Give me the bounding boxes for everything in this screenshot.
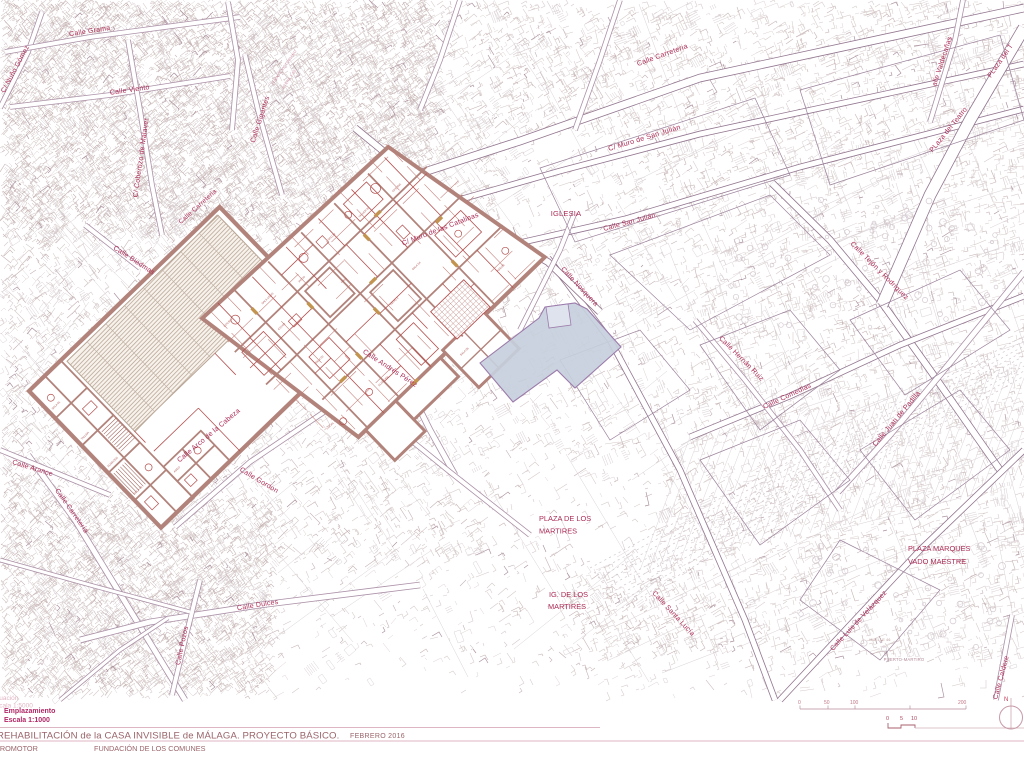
svg-text:MUELLE 46: MUELLE 46 bbox=[869, 638, 890, 642]
svg-text:PLAZA MARQUES: PLAZA MARQUES bbox=[908, 544, 970, 553]
svg-text:0: 0 bbox=[886, 716, 889, 722]
svg-text:REHABILITACIÓN de la CASA INVI: REHABILITACIÓN de la CASA INVISIBLE de M… bbox=[0, 731, 339, 742]
svg-text:100: 100 bbox=[850, 700, 859, 706]
svg-text:MARTIRES: MARTIRES bbox=[539, 527, 577, 536]
svg-text:Emplazamiento: Emplazamiento bbox=[4, 708, 55, 715]
svg-text:FUNDACIÓN DE LOS COMUNES: FUNDACIÓN DE LOS COMUNES bbox=[94, 744, 206, 753]
svg-text:VADO MAESTRE: VADO MAESTRE bbox=[908, 557, 966, 566]
svg-text:50: 50 bbox=[824, 700, 830, 706]
svg-text:FEBRERO 2016: FEBRERO 2016 bbox=[350, 733, 405, 740]
svg-text:5: 5 bbox=[900, 716, 903, 722]
svg-text:200: 200 bbox=[958, 700, 967, 706]
svg-text:MARTIRES: MARTIRES bbox=[548, 602, 586, 611]
svg-text:IGLESIA: IGLESIA bbox=[551, 209, 582, 218]
svg-text:ituación: ituación bbox=[0, 695, 19, 702]
svg-text:10: 10 bbox=[911, 716, 917, 722]
svg-text:PUERTO-MARTIRO: PUERTO-MARTIRO bbox=[884, 657, 925, 662]
svg-text:PLAZA DE LOS: PLAZA DE LOS bbox=[539, 514, 591, 523]
svg-text:PROMOTOR: PROMOTOR bbox=[0, 744, 38, 753]
svg-text:Escala 1:1000: Escala 1:1000 bbox=[4, 717, 50, 724]
svg-text:IG. DE LOS: IG. DE LOS bbox=[549, 590, 588, 599]
svg-text:N: N bbox=[1004, 697, 1008, 703]
svg-text:0: 0 bbox=[798, 700, 801, 706]
